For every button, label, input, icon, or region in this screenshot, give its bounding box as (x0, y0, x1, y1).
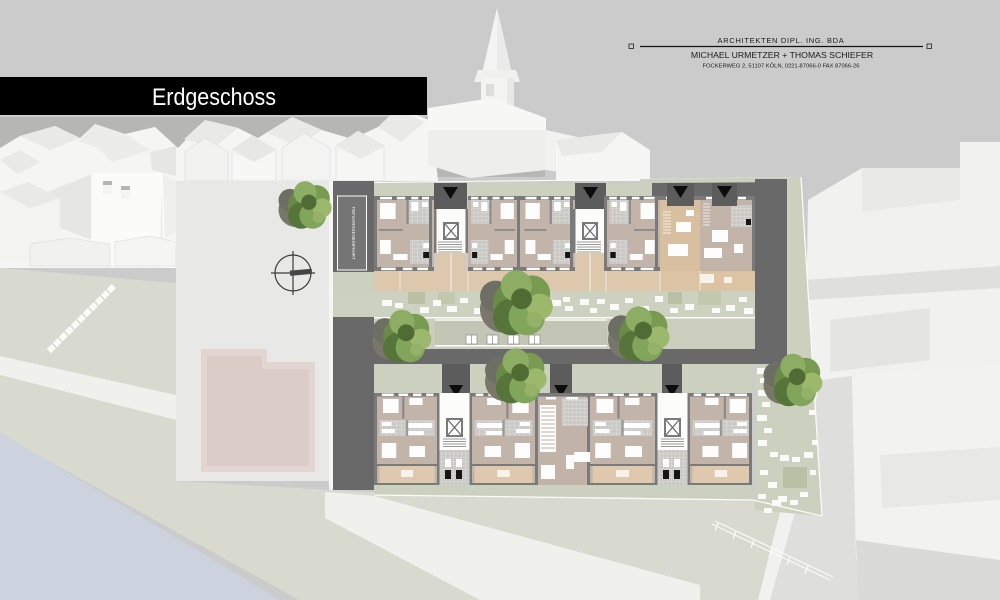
svg-text:ARCHITEKTEN DIPL. ING. BDA: ARCHITEKTEN DIPL. ING. BDA (718, 36, 845, 45)
svg-text:TIEFGARAGENEINFAHRT: TIEFGARAGENEINFAHRT (351, 206, 356, 260)
svg-text:MICHAEL URMETZER + THOMAS SC: MICHAEL URMETZER + THOMAS SCHIEFER (691, 50, 873, 60)
svg-text:Erdgeschoss: Erdgeschoss (152, 84, 276, 111)
svg-text:FOCKERWEG 2, 51107 KÖLN, 022: FOCKERWEG 2, 51107 KÖLN, 0221-87066-0 FA… (702, 63, 859, 70)
